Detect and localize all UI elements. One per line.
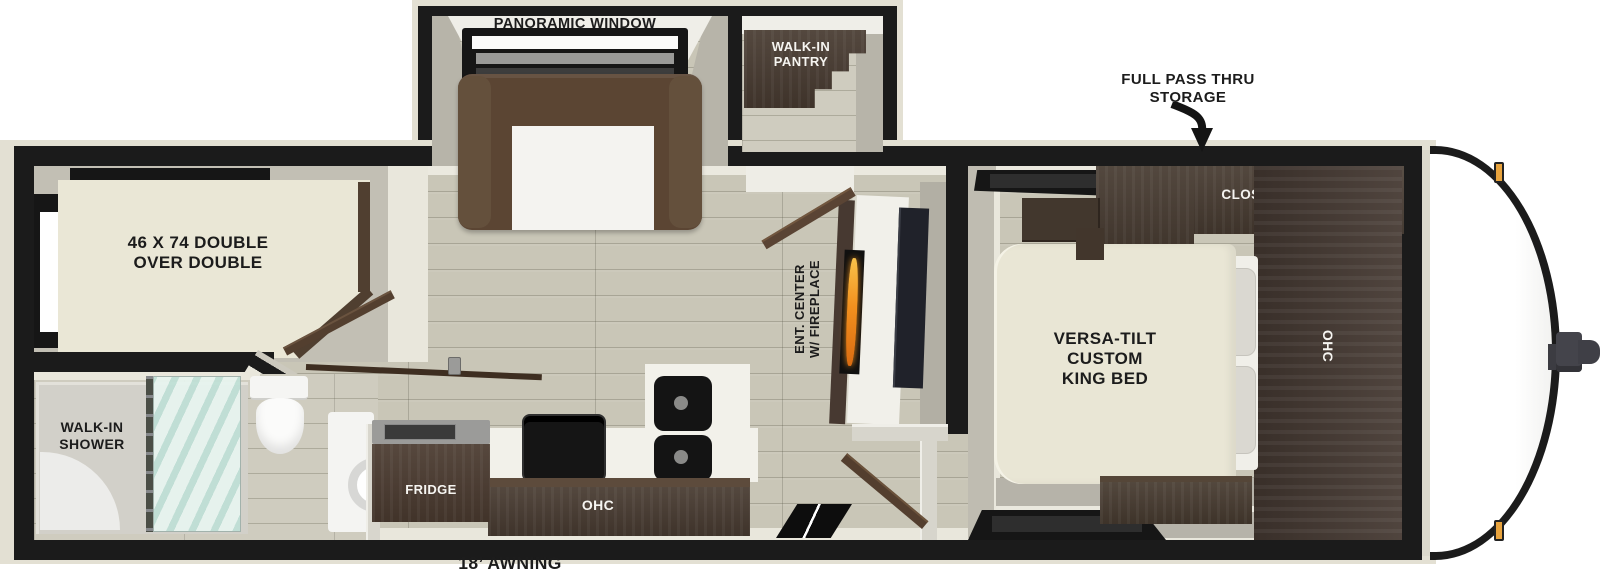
marker-light-top bbox=[1494, 162, 1504, 183]
wall-bunk-bath bbox=[34, 352, 274, 372]
sofa-arm-left bbox=[458, 76, 491, 228]
bedroom-wall-band-left bbox=[968, 166, 996, 538]
sink-drain bbox=[674, 396, 688, 410]
front-cap bbox=[1430, 154, 1552, 552]
fridge-label: FRIDGE bbox=[372, 482, 490, 498]
bunk-label: 46 X 74 DOUBLE OVER DOUBLE bbox=[48, 232, 348, 274]
sink-drain bbox=[674, 450, 688, 464]
bedroom-ohc-label: OHC bbox=[1319, 286, 1337, 406]
bunkroom-wall-band bbox=[388, 166, 428, 362]
door-frame-top bbox=[746, 166, 854, 192]
bed-foot-cabinet bbox=[1100, 476, 1252, 524]
fireplace-flame bbox=[845, 258, 860, 366]
entcenter-label: ENT. CENTER W/ FIREPLACE bbox=[790, 226, 824, 392]
sofa-arm-right bbox=[669, 76, 702, 228]
pantry-label: WALK-IN PANTRY bbox=[742, 36, 860, 72]
shower-door-hinge bbox=[146, 376, 153, 532]
panoramic-window-slat bbox=[472, 36, 678, 49]
grab-bar-bracket bbox=[448, 357, 461, 375]
king-bed-label: VERSA-TILT CUSTOM KING BED bbox=[1010, 326, 1200, 392]
panoramic-window-label: PANORAMIC WINDOW bbox=[445, 16, 705, 34]
bed-head-cabinet bbox=[1076, 228, 1104, 260]
shower-glass-door bbox=[153, 376, 241, 532]
toilet-tank bbox=[250, 376, 308, 400]
fridge-vent bbox=[384, 424, 456, 440]
shower-label: WALK-IN SHOWER bbox=[40, 416, 144, 456]
hitch-coupler bbox=[1548, 326, 1600, 382]
floorplan: PANORAMIC WINDOW WALK-IN PANTRY 46 X 74 … bbox=[0, 0, 1600, 581]
hitch-tab bbox=[1548, 344, 1556, 370]
bunk-trim-right bbox=[358, 182, 370, 292]
sofa-cushion bbox=[512, 126, 654, 230]
hitch-bar bbox=[1578, 340, 1600, 364]
stove bbox=[522, 414, 606, 482]
tv bbox=[893, 208, 929, 389]
marker-light-bottom bbox=[1494, 520, 1504, 541]
awning-label: 18’ AWNING bbox=[400, 550, 620, 576]
full-pass-thru-arrow bbox=[1158, 102, 1216, 158]
wall-divider bbox=[946, 166, 970, 434]
panoramic-window-slat bbox=[476, 53, 674, 64]
kitchen-ohc-label: OHC bbox=[488, 496, 708, 514]
vestibule-wall-h bbox=[852, 424, 948, 441]
